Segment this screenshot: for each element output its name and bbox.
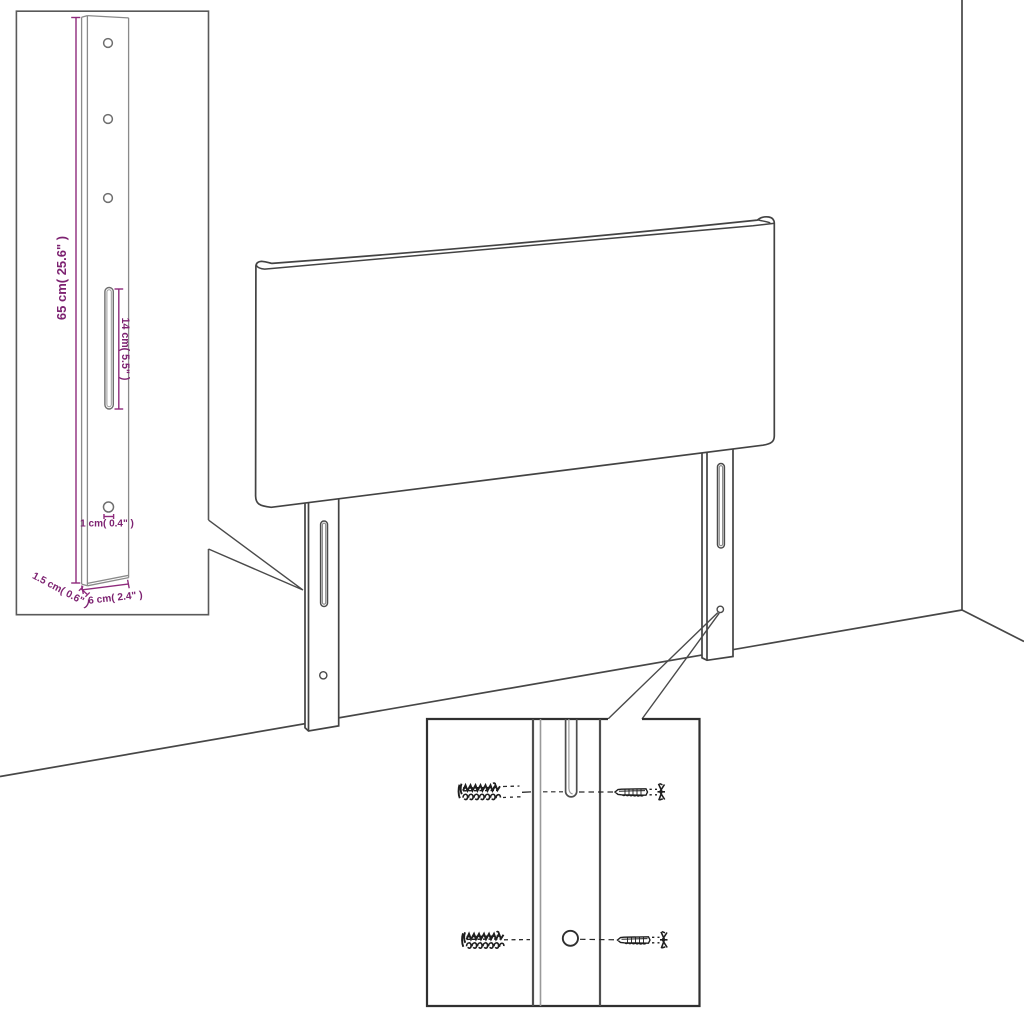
svg-text:14 cm( 5.5" ): 14 cm( 5.5" ): [119, 318, 131, 381]
svg-text:1 cm( 0.4" ): 1 cm( 0.4" ): [80, 519, 134, 530]
svg-text:65 cm( 25.6" ): 65 cm( 25.6" ): [54, 236, 69, 320]
